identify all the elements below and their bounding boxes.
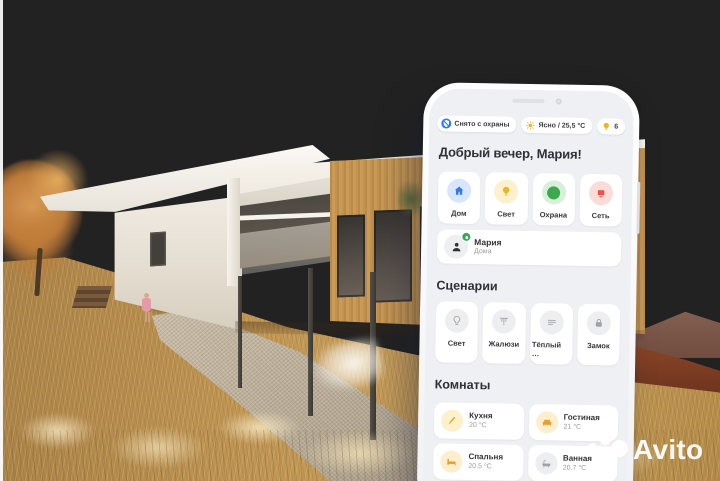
- room-name: Спальня: [468, 452, 503, 463]
- room-temp: 20 °C: [469, 422, 493, 431]
- at-home-badge: [461, 232, 471, 242]
- network-icon: [589, 181, 613, 205]
- tile-label: Сеть: [592, 211, 610, 220]
- avito-watermark: Avito: [586, 433, 703, 467]
- room-name: Кухня: [469, 411, 493, 422]
- kitchen-icon: [441, 409, 463, 431]
- bedroom-icon: [440, 450, 462, 472]
- tile-label: Замок: [587, 341, 610, 350]
- quick-tiles-row: Дом Свет Охрана: [438, 171, 623, 226]
- scenario-lock[interactable]: Замок: [577, 304, 620, 366]
- small-tree: [398, 176, 424, 222]
- house-small-window: [150, 231, 166, 266]
- user-name: Мария: [474, 237, 501, 249]
- house-steps: [72, 286, 112, 308]
- smartphone-mockup: Снято с охраны Ясно / 25,5 °C 6 Добрый в…: [417, 82, 640, 481]
- light-outline-icon: [445, 309, 469, 333]
- room-kitchen[interactable]: Кухня 20 °C: [434, 402, 524, 440]
- lights-count-label: 6: [614, 123, 618, 130]
- facade-window: [374, 209, 412, 302]
- weather-label: Ясно / 25,5 °C: [538, 122, 585, 130]
- avito-logo-icon: [586, 433, 630, 467]
- security-status-pill[interactable]: Снято с охраны: [437, 115, 516, 132]
- lights-count-pill[interactable]: 6: [597, 118, 625, 134]
- tile-label: Дом: [451, 209, 467, 218]
- promo-screenshot: Снято с охраны Ясно / 25,5 °C 6 Добрый в…: [0, 0, 720, 481]
- house-column: [227, 178, 240, 286]
- tile-label: Свет: [448, 339, 466, 348]
- room-temp: 20.5 °C: [468, 463, 503, 472]
- image-left-border: [0, 0, 3, 481]
- user-card[interactable]: Мария Дома: [437, 229, 622, 266]
- tile-label: Жалюзи: [488, 339, 519, 349]
- user-status: Дома: [474, 248, 501, 257]
- light-icon: [494, 179, 518, 203]
- home-icon: [447, 179, 471, 203]
- tile-network[interactable]: Сеть: [579, 174, 622, 227]
- tile-light[interactable]: Свет: [485, 172, 528, 225]
- room-bedroom[interactable]: Спальня 20.5 °C: [433, 443, 523, 481]
- smart-home-app-screen: Снято с охраны Ясно / 25,5 °C 6 Добрый в…: [423, 88, 634, 481]
- rooms-section-title: Комнаты: [435, 377, 619, 394]
- scenario-blinds[interactable]: Жалюзи: [482, 302, 525, 364]
- tile-label: Свет: [497, 209, 515, 218]
- weather-clear-icon: [525, 120, 535, 130]
- security-icon: [542, 180, 566, 204]
- bathroom-icon: [535, 452, 557, 474]
- heated-floor-icon: [539, 310, 563, 334]
- tile-home[interactable]: Дом: [438, 171, 481, 224]
- scenarios-section-title: Сценарии: [436, 278, 620, 295]
- room-temp: 21 °C: [563, 424, 599, 433]
- phone-speaker: [512, 99, 544, 104]
- lock-icon: [587, 311, 611, 335]
- security-status-label: Снято с охраны: [454, 120, 509, 128]
- lights-on-count-icon: [601, 121, 611, 131]
- child-figure-leg: [148, 312, 150, 322]
- greeting-title: Добрый вечер, Мария!: [439, 144, 623, 162]
- scenario-heated-floor[interactable]: Тёплый …: [530, 303, 573, 365]
- avatar: [444, 234, 468, 258]
- tile-security[interactable]: Охрана: [532, 173, 575, 226]
- scenario-tiles-row: Свет Жалюзи Тёплый …: [435, 301, 620, 365]
- living-room-icon: [535, 411, 557, 433]
- facade-window: [337, 215, 365, 298]
- security-disarmed-icon: [441, 118, 451, 128]
- tile-label: Тёплый …: [532, 340, 571, 359]
- tile-label: Охрана: [540, 210, 568, 219]
- phone-camera: [556, 98, 562, 104]
- scenario-light[interactable]: Свет: [435, 301, 478, 363]
- weather-pill[interactable]: Ясно / 25,5 °C: [521, 117, 592, 134]
- blinds-icon: [492, 309, 516, 333]
- status-pills-row: Снято с охраны Ясно / 25,5 °C 6: [429, 115, 633, 135]
- child-figure-leg: [145, 312, 147, 322]
- child-figure-dress: [142, 298, 151, 312]
- avito-brand-text: Avito: [633, 434, 703, 466]
- phone-top-bezel: [430, 93, 634, 111]
